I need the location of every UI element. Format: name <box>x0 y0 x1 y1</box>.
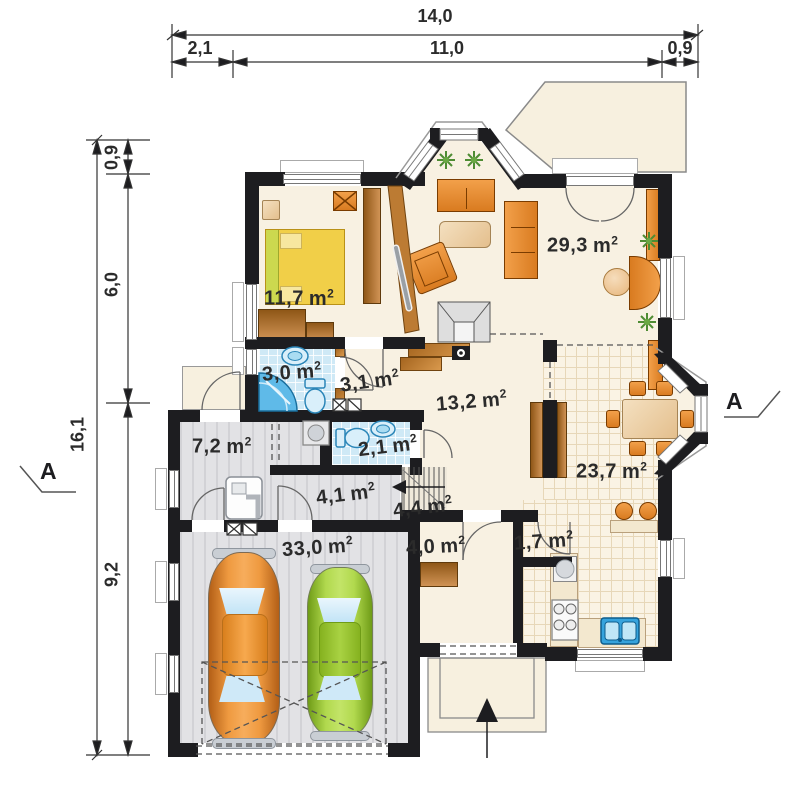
fireplace <box>438 302 490 358</box>
room-label-living: 29,3m2 <box>547 233 618 258</box>
room-label-dining: 23,7m2 <box>576 459 647 484</box>
bedroom-partition <box>388 186 419 333</box>
room-label-pantry: 1,7m2 <box>513 527 574 556</box>
room-label-utility: 7,2m2 <box>192 434 252 459</box>
bay-window-right <box>654 348 708 480</box>
dimension-left-seg2: 6,0 <box>102 257 123 313</box>
toilet-tank <box>336 429 345 447</box>
toilet <box>305 389 325 413</box>
bedroom-chair-detail <box>334 192 356 210</box>
dimension-left-total: 16,1 <box>68 405 89 465</box>
floor-plan: 14,0 2,1 11,0 0,9 16,1 0,9 6,0 9,2 A A 1… <box>0 0 800 785</box>
stairs-arrow-icon <box>392 480 406 494</box>
room-label-garage: 33,0m2 <box>281 533 354 563</box>
fridge-top <box>556 560 574 578</box>
section-marker-a-right: A <box>726 388 743 415</box>
plan-linework <box>0 0 800 785</box>
room-label-vestibule: 4,0m2 <box>405 532 466 560</box>
room-label-bedroom: 11,7m2 <box>264 286 334 311</box>
dimension-left-seg1: 0,9 <box>102 130 123 186</box>
section-marker-a-left: A <box>40 458 57 485</box>
kitchen-fixtures <box>552 560 639 644</box>
room-label-bathroom: 3,0m2 <box>261 358 322 387</box>
dimension-left-seg3: 9,2 <box>102 547 123 603</box>
dimension-lines <box>86 24 703 760</box>
dimension-top-seg2: 11,0 <box>420 38 474 59</box>
dimension-top-seg1: 2,1 <box>178 38 222 59</box>
bay-window-top <box>396 122 530 190</box>
dimension-top-seg3: 0,9 <box>658 38 702 59</box>
dimension-top-total: 14,0 <box>407 6 463 27</box>
utility-fixtures <box>226 477 262 519</box>
